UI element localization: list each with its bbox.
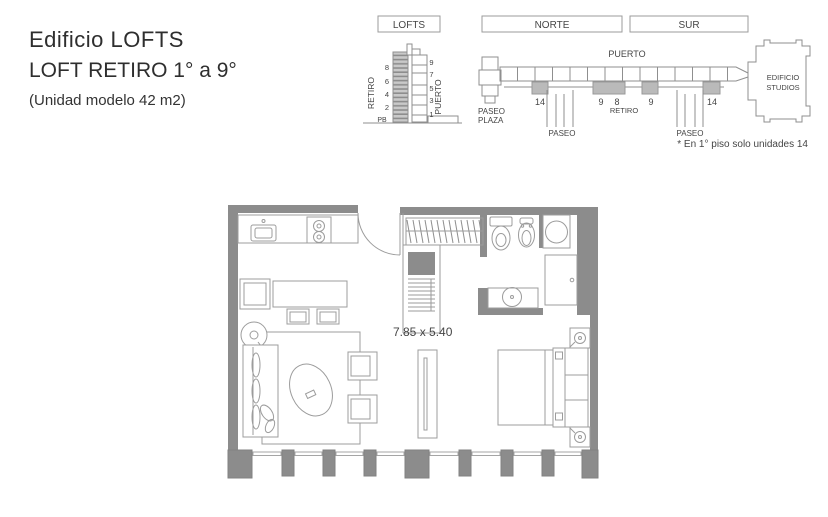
closet	[406, 218, 483, 245]
left-wall	[228, 205, 238, 450]
retiro-street-label: RETIRO	[366, 77, 376, 110]
headboard-platform	[553, 348, 565, 427]
bedroom	[498, 328, 590, 447]
top-wall-right	[400, 207, 598, 215]
armchair	[348, 352, 377, 380]
studios-label-1: EDIFICIO	[767, 73, 800, 82]
paseo-plaza-label-2: PLAZA	[478, 116, 504, 125]
floor-4: 4	[385, 90, 389, 99]
cooktop	[307, 217, 331, 243]
floor-2: 2	[385, 103, 389, 112]
unit-9-b: 9	[648, 97, 653, 107]
norte-label: NORTE	[535, 20, 570, 31]
floor-8: 8	[385, 63, 389, 72]
paseo-label-1: PASEO	[549, 129, 576, 138]
header: Edificio LOFTS LOFT RETIRO 1° a 9° (Unid…	[29, 27, 237, 109]
floor-6: 6	[385, 77, 389, 86]
building-title: Edificio LOFTS	[29, 27, 237, 53]
stool	[317, 309, 339, 324]
stool	[287, 309, 309, 324]
paseo-label-2: PASEO	[677, 129, 704, 138]
shaded-units	[532, 82, 720, 94]
retiro-tower	[393, 52, 408, 122]
retiro-side-label: RETIRO	[610, 106, 639, 115]
unit-14-right: 14	[707, 97, 717, 107]
paseo-plaza-structure	[479, 57, 501, 103]
floor-plan: 7.85 x 5.40	[225, 195, 600, 490]
reading-light	[556, 413, 563, 420]
bathroom	[488, 215, 577, 308]
studios-link-bottom	[727, 77, 748, 81]
right-wall-bathroom	[577, 207, 598, 315]
lofts-title-box: LOFTS	[378, 16, 440, 32]
washing-machine	[543, 215, 570, 248]
vanity-sink	[503, 288, 522, 307]
bathroom-south-wall	[478, 308, 543, 315]
floor-7: 7	[429, 70, 433, 79]
building-elevation-diagram: LOFTS 8 6 4 2 PB 9 7 5 3 1 RETIRO PUERTO	[360, 10, 470, 145]
bidet	[519, 218, 535, 247]
model-note: (Unidad modelo 42 m2)	[29, 92, 237, 109]
studios-link-top	[727, 67, 748, 73]
entry-door	[358, 213, 400, 255]
vanity	[488, 288, 538, 309]
room-dimensions-label: 7.85 x 5.40	[393, 325, 453, 339]
footnote: * En 1° piso solo unidades 14	[677, 139, 808, 150]
stair-landing	[408, 252, 435, 275]
door-swing-arc	[358, 213, 400, 255]
shelf-unit	[565, 348, 588, 427]
right-wall-bedroom	[590, 315, 598, 450]
sur-label: SUR	[678, 20, 699, 31]
kitchen-sink	[251, 220, 276, 242]
armchair	[348, 395, 377, 423]
toilet	[490, 217, 512, 250]
coffee-table	[281, 357, 340, 423]
site-plan-diagram: NORTE SUR PUERTO 14 9 8 9 14 RETIRO PASE…	[470, 10, 820, 155]
lofts-label: LOFTS	[393, 20, 426, 31]
floor-pb: PB	[377, 117, 387, 124]
edificio-studios: EDIFICIO STUDIOS	[748, 40, 810, 122]
top-wall-left	[228, 205, 358, 213]
shower-door-knob	[570, 278, 574, 282]
window-wall	[228, 450, 598, 478]
page: { "header": { "title": "Edificio LOFTS",…	[0, 0, 828, 517]
living-room	[241, 322, 437, 444]
shower	[545, 255, 577, 305]
nightstand	[570, 427, 590, 447]
section-towers	[363, 44, 462, 123]
floor-9: 9	[429, 58, 433, 67]
unit-subtitle: LOFT RETIRO 1° a 9°	[29, 59, 237, 83]
kitchen	[238, 215, 358, 324]
puerto-side-label: PUERTO	[608, 49, 645, 59]
orientation-boxes: NORTE SUR	[482, 16, 748, 32]
unit-14-left: 14	[535, 97, 545, 107]
puerto-street-label: PUERTO	[433, 79, 443, 115]
vanity-wall-stub	[478, 288, 488, 308]
parapet-step	[412, 49, 420, 55]
fridge	[240, 279, 270, 309]
washer-partition	[539, 215, 543, 248]
tv-panel-divider	[418, 350, 437, 438]
bed	[498, 350, 553, 425]
reading-light	[556, 352, 563, 359]
nightstand	[570, 328, 590, 348]
studios-label-2: STUDIOS	[766, 83, 799, 92]
faucet-icon	[262, 220, 265, 223]
kitchen-island	[273, 281, 347, 307]
core-wall	[407, 44, 412, 55]
unit-9-a: 9	[598, 97, 603, 107]
kitchen-counter	[238, 215, 358, 243]
sofa	[243, 345, 278, 437]
paseo-plaza-label-1: PASEO	[478, 107, 505, 116]
